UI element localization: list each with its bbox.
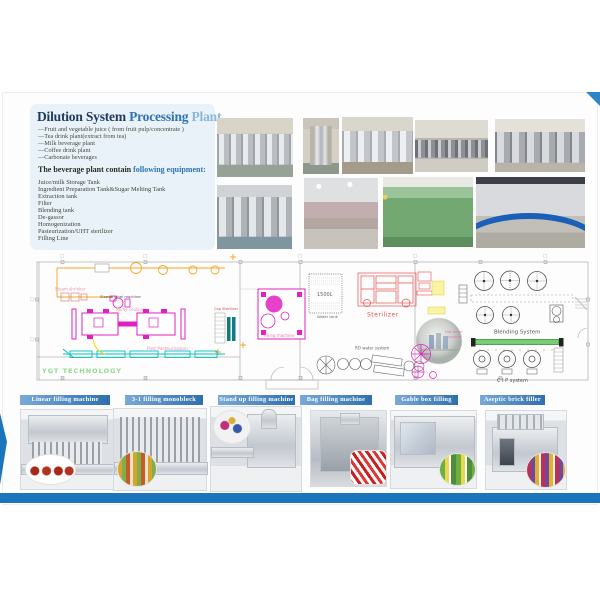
- list-item: Filter: [38, 200, 214, 207]
- plant-photo-inset: [416, 318, 462, 364]
- factory-floor-plan: Steam shrinker Sleeve label machine Spra…: [15, 253, 593, 393]
- outfeed-conveyor: [63, 349, 225, 358]
- machine-banner: Bag filling machine: [300, 395, 372, 405]
- machine-frame: [28, 415, 107, 444]
- list-item: Filling Line: [38, 235, 214, 242]
- blending-system-label: Blending System: [494, 330, 540, 336]
- rotary-monoblock-image: [113, 408, 207, 491]
- steam-shrinker-label: Steam shrinker: [55, 287, 86, 292]
- yellow-cabinet: [432, 281, 444, 295]
- title-mid: Processing: [129, 109, 191, 124]
- linear-filling-machine-image: [20, 409, 114, 490]
- bottom-accent-band: [0, 493, 600, 503]
- photo-bottle-water-bath: [383, 177, 473, 247]
- machine-banner: Linear filling machine: [20, 395, 110, 405]
- list-item: Pasteurization/UHT sterilizer: [38, 228, 214, 235]
- ro-water-tanks: [317, 355, 424, 376]
- title-lead: Dilution System: [37, 109, 129, 124]
- hot-water-system-label: Hot water: [445, 330, 463, 334]
- list-item: Homogenization: [38, 221, 214, 228]
- spray-cooling-tunnels: [72, 309, 185, 339]
- standup-pouch-machine-image: [210, 406, 302, 492]
- list-item: Blending tank: [38, 207, 214, 214]
- equipment-heading-dark: The beverage plant contain: [38, 165, 133, 174]
- photo-production-hall: [304, 178, 378, 249]
- photo-tanks-room: [217, 118, 293, 177]
- equipment-list: Juice/milk Storage Tank Ingredient Prepa…: [38, 179, 214, 242]
- transfer-curve: [93, 339, 105, 354]
- sauce-jars-inset: [25, 454, 77, 484]
- photo-conveyor-hall: [476, 177, 585, 248]
- photo-plant-interior: [495, 119, 585, 172]
- sleeve-label-machine-label: Sleeve label machine: [100, 294, 141, 299]
- sterilizer-unit: [358, 273, 416, 307]
- machine-banner: Aseptic brick filler: [480, 395, 545, 405]
- plant-types-list: —Fruit and vegetable juice ( from fruit …: [38, 127, 214, 162]
- water-tank-label: Water tank: [317, 314, 339, 319]
- yellow-cabinet: [428, 307, 445, 314]
- spray-cooling-label: Spray cooling: [116, 307, 144, 312]
- hopper: [261, 409, 277, 429]
- cip-tanks: [474, 351, 541, 375]
- sterilizer-label: Sterilizer: [367, 312, 399, 319]
- bottles-inset: [117, 451, 158, 487]
- equipment-heading: The beverage plant contain following equ…: [38, 165, 214, 174]
- tank-capacity-label: 1500L: [317, 292, 333, 298]
- gable-cartons-inset: [439, 453, 477, 486]
- machine-banner: Gable box filling: [395, 395, 458, 405]
- bag-filling-machine-image: [310, 410, 387, 487]
- equipment-heading-blue: following equipment:: [133, 165, 206, 174]
- cip-system-label: C I P system: [497, 378, 528, 384]
- company-watermark: YGT TECHNOLOGY: [41, 367, 122, 375]
- list-item: Extraction tank: [38, 193, 214, 200]
- photo-tank-row: [342, 117, 413, 174]
- list-item: De-gassor: [38, 214, 214, 221]
- platform-bar: [471, 338, 564, 350]
- photo-mixing-tank: [303, 118, 339, 174]
- infeed-conveyor-line: [57, 254, 246, 355]
- control-screen: [340, 413, 360, 426]
- utility-unit: [417, 272, 432, 295]
- infeed-conveyor: [211, 447, 254, 457]
- machine-banner: Stand up filling machine: [218, 395, 295, 405]
- ro-water-system-label: RO water system: [355, 346, 389, 351]
- filling-machine-label: Filling machine: [264, 333, 295, 338]
- sachets-inset: [350, 450, 387, 485]
- page-title: Dilution System Processing Plant: [37, 109, 217, 125]
- machine-banner: 3-1 filling monoblock: [125, 395, 203, 405]
- list-item: Ingredient Preparation Tank&Sugar Meltin…: [38, 186, 214, 193]
- aseptic-brick-filler-image: [485, 410, 567, 490]
- photo-storage-tanks: [217, 185, 292, 249]
- brick-cartons-inset: [526, 452, 566, 488]
- shrink-tunnel: [95, 264, 109, 272]
- list-item: —Carbonate beverages: [38, 155, 214, 162]
- cap-sterilizer-label: Cap Sterilizer: [214, 307, 239, 311]
- platform-rail: [497, 414, 544, 430]
- hot-water-system-label2: system: [448, 335, 461, 339]
- buffer-water-tank: 1500L: [309, 274, 342, 313]
- screen-column: [499, 438, 515, 467]
- blending-tanks: [459, 271, 573, 372]
- list-item: Juice/milk Storage Tank: [38, 179, 214, 186]
- pouches-inset: [213, 410, 251, 444]
- cap-sterilizer-unit: [215, 313, 236, 343]
- gable-box-machine-image: [390, 410, 477, 489]
- filling-machine: [258, 289, 305, 339]
- photo-bottling-line: [415, 120, 488, 172]
- window-panel: [400, 422, 436, 455]
